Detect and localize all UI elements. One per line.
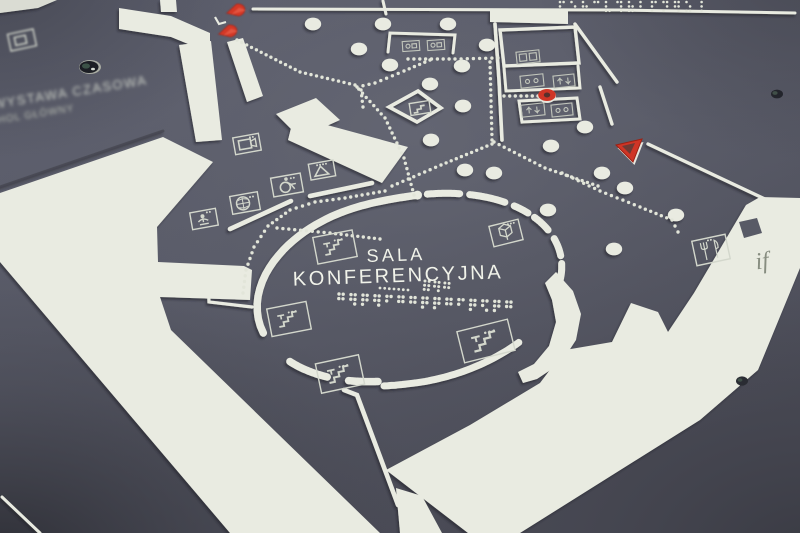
- svg-text:SALA: SALA: [366, 244, 426, 266]
